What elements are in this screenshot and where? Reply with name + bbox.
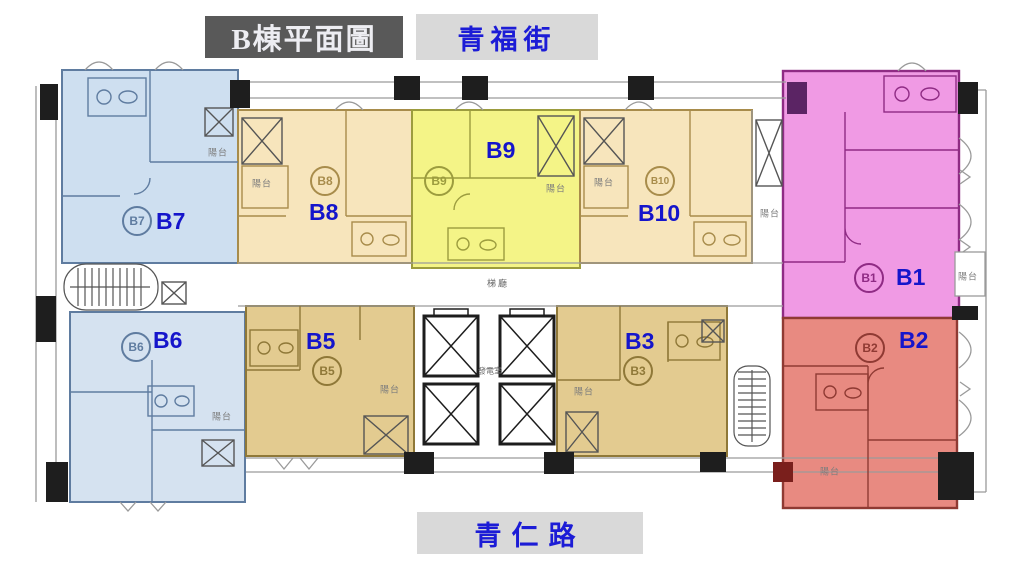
unit-b5-label: B5 bbox=[306, 327, 335, 355]
balcony-label: 陽台 bbox=[958, 270, 978, 283]
elevator-core bbox=[424, 309, 554, 444]
unit-b10-circle-label: B10 bbox=[645, 166, 675, 196]
unit-b6-circle-label: B6 bbox=[121, 332, 151, 362]
balcony-label: 陽台 bbox=[252, 177, 272, 190]
balcony-label: 陽台 bbox=[380, 383, 400, 396]
balcony-label: 陽台 bbox=[820, 465, 840, 478]
unit-b6-label: B6 bbox=[153, 326, 182, 354]
street-label-bottom: 青仁路 bbox=[417, 512, 643, 554]
unit-b5-circle-label: B5 bbox=[312, 356, 342, 386]
balcony-label: 陽台 bbox=[574, 385, 594, 398]
unit-b2-circle-label: B2 bbox=[855, 333, 885, 363]
unit-b1-circle-label: B1 bbox=[854, 263, 884, 293]
balcony-label: 陽台 bbox=[546, 182, 566, 195]
elevator-hall-label: 梯廳 bbox=[487, 277, 509, 290]
unit-b7-label: B7 bbox=[156, 207, 185, 235]
unit-b8-circle-label: B8 bbox=[310, 166, 340, 196]
unit-b3-circle-label: B3 bbox=[623, 356, 653, 386]
generator-room-label: 發電室 bbox=[478, 366, 502, 377]
page-title: B棟平面圖 bbox=[205, 16, 403, 58]
unit-b1-label: B1 bbox=[896, 263, 925, 291]
unit-b9-label: B9 bbox=[486, 136, 515, 164]
street-label-top: 青福街 bbox=[416, 14, 598, 60]
unit-b7-circle-label: B7 bbox=[122, 206, 152, 236]
unit-b2-label: B2 bbox=[899, 326, 928, 354]
balcony-label: 陽台 bbox=[208, 146, 228, 159]
floor-plan-page: B棟平面圖 青福街 青仁路 B7 B8 B9 B10 B1 B2 B6 B5 B… bbox=[0, 0, 1024, 576]
balcony-label: 陽台 bbox=[594, 176, 614, 189]
unit-b8-label: B8 bbox=[309, 198, 338, 226]
unit-b10-label: B10 bbox=[638, 199, 680, 227]
balcony-label: 陽台 bbox=[760, 207, 780, 220]
unit-b3-label: B3 bbox=[625, 327, 654, 355]
balcony-label: 陽台 bbox=[212, 410, 232, 423]
unit-b9-circle-label: B9 bbox=[424, 166, 454, 196]
